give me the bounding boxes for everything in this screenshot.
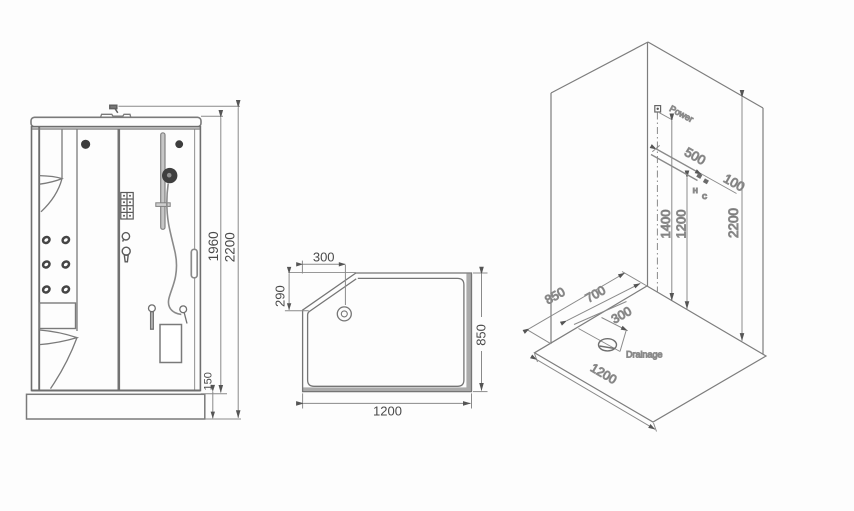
- svg-text:H: H: [693, 188, 698, 195]
- svg-text:150: 150: [202, 372, 214, 390]
- svg-text:290: 290: [272, 285, 287, 307]
- svg-text:850: 850: [543, 285, 568, 307]
- svg-text:850: 850: [474, 324, 489, 346]
- svg-text:100: 100: [721, 171, 747, 195]
- svg-text:1200: 1200: [373, 403, 402, 418]
- svg-text:1400: 1400: [658, 210, 673, 239]
- svg-text:300: 300: [313, 250, 335, 265]
- svg-text:500: 500: [682, 144, 708, 168]
- svg-text:C: C: [702, 194, 707, 201]
- svg-text:Drainage: Drainage: [626, 349, 663, 359]
- svg-text:1200: 1200: [673, 210, 688, 239]
- svg-text:1960: 1960: [206, 231, 221, 261]
- svg-text:2200: 2200: [223, 232, 238, 262]
- svg-text:2200: 2200: [726, 208, 741, 238]
- svg-text:1200: 1200: [588, 361, 619, 387]
